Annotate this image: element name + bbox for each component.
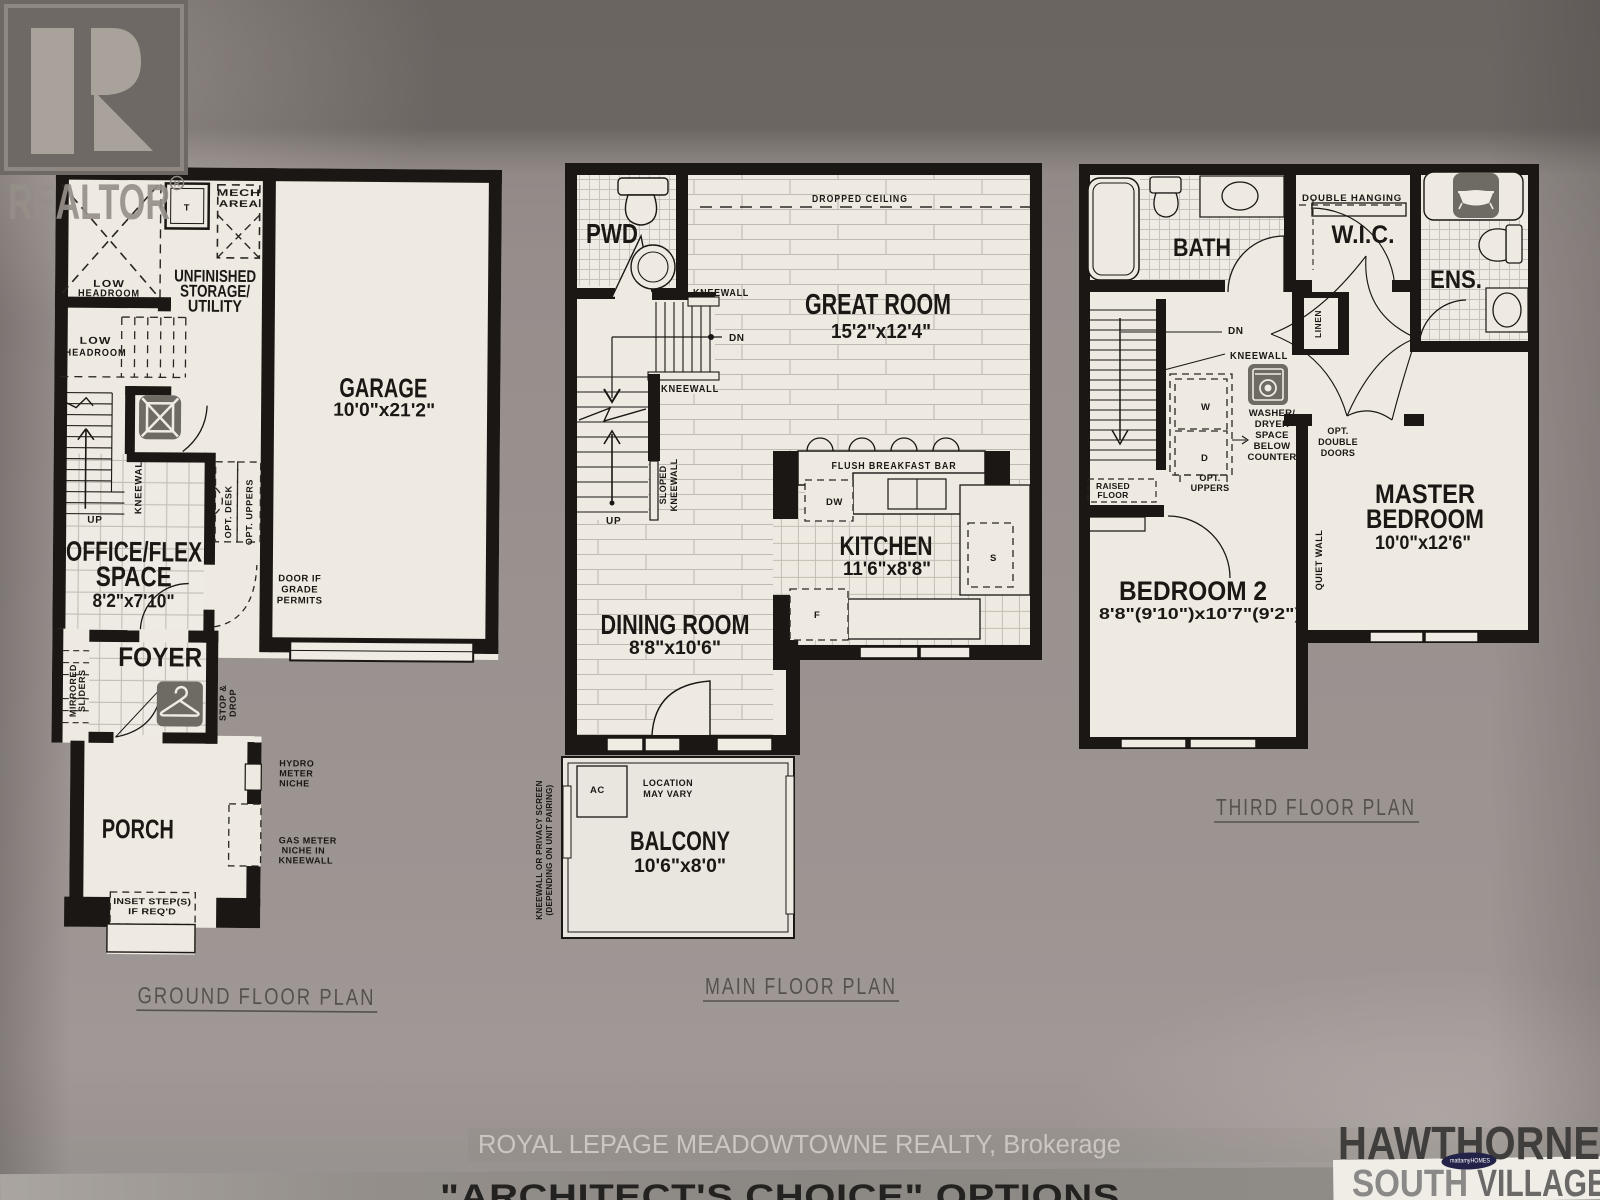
svg-text:T: T bbox=[184, 203, 190, 213]
svg-text:KITCHEN: KITCHEN bbox=[840, 531, 933, 561]
svg-text:S: S bbox=[990, 553, 996, 564]
svg-text:COUNTER: COUNTER bbox=[1247, 452, 1296, 463]
svg-text:DRYER: DRYER bbox=[1255, 419, 1289, 430]
svg-text:INSET STEP(S): INSET STEP(S) bbox=[113, 896, 191, 907]
svg-text:HEADROOM: HEADROOM bbox=[78, 288, 140, 299]
svg-text:PORCH: PORCH bbox=[102, 814, 174, 845]
svg-text:11'6"x8'8": 11'6"x8'8" bbox=[843, 559, 931, 580]
svg-text:10'0"x21'2": 10'0"x21'2" bbox=[333, 400, 435, 422]
svg-text:THIRD FLOOR PLAN: THIRD FLOOR PLAN bbox=[1216, 794, 1416, 820]
svg-text:D: D bbox=[1201, 453, 1208, 464]
svg-text:SPACE: SPACE bbox=[1255, 430, 1289, 441]
svg-text:KNEEWALL: KNEEWALL bbox=[661, 384, 719, 395]
svg-text:KNEEWALL: KNEEWALL bbox=[279, 855, 334, 865]
svg-text:SLOPED: SLOPED bbox=[658, 465, 668, 504]
svg-text:(DEPENDING ON UNIT PAIRING): (DEPENDING ON UNIT PAIRING) bbox=[545, 784, 554, 915]
svg-text:NICHE: NICHE bbox=[279, 778, 310, 788]
svg-text:MECH: MECH bbox=[217, 188, 261, 199]
svg-text:MAY VARY: MAY VARY bbox=[643, 789, 693, 799]
svg-text:IF REQ'D: IF REQ'D bbox=[128, 906, 176, 916]
svg-text:GROUND FLOOR PLAN: GROUND FLOOR PLAN bbox=[137, 982, 375, 1010]
svg-text:DN: DN bbox=[729, 333, 744, 344]
svg-text:FLOOR: FLOOR bbox=[1097, 490, 1128, 500]
svg-text:8'2"x7'10": 8'2"x7'10" bbox=[93, 591, 175, 613]
svg-text:mattamyHOMES: mattamyHOMES bbox=[1450, 1158, 1491, 1165]
svg-text:MAIN FLOOR PLAN: MAIN FLOOR PLAN bbox=[705, 973, 897, 999]
svg-text:W.I.C.: W.I.C. bbox=[1332, 221, 1395, 249]
svg-text:KNEEWALL: KNEEWALL bbox=[669, 458, 679, 511]
svg-text:OPT.: OPT. bbox=[1199, 473, 1220, 483]
svg-text:DROPPED CEILING: DROPPED CEILING bbox=[812, 194, 908, 205]
svg-text:KNEEWALL: KNEEWALL bbox=[1230, 351, 1288, 362]
svg-text:SLIDERS: SLIDERS bbox=[77, 669, 87, 712]
svg-text:DOOR IF: DOOR IF bbox=[278, 573, 321, 584]
svg-text:UP: UP bbox=[87, 515, 103, 526]
svg-text:10'0"x12'6": 10'0"x12'6" bbox=[1375, 533, 1471, 554]
svg-text:UP: UP bbox=[606, 516, 622, 527]
svg-text:METER: METER bbox=[279, 768, 313, 778]
svg-text:SOUTH: SOUTH bbox=[1352, 1163, 1468, 1200]
svg-text:DOORS: DOORS bbox=[1321, 448, 1356, 458]
svg-text:OPT. DESK: OPT. DESK bbox=[223, 485, 233, 538]
svg-text:STOP &: STOP & bbox=[218, 685, 228, 721]
svg-text:ROYAL LEPAGE MEADOWTOWNE REALT: ROYAL LEPAGE MEADOWTOWNE REALTY, Brokera… bbox=[478, 1131, 1121, 1159]
svg-text:8'8"(9'10")x10'7"(9'2"): 8'8"(9'10")x10'7"(9'2") bbox=[1099, 606, 1301, 623]
svg-text:LINEN: LINEN bbox=[1313, 310, 1323, 338]
svg-text:HEADROOM: HEADROOM bbox=[65, 348, 127, 359]
svg-text:AC: AC bbox=[590, 785, 605, 796]
svg-text:KNEEWALL OR PRIVACY SCREEN: KNEEWALL OR PRIVACY SCREEN bbox=[535, 780, 544, 919]
svg-text:UPPERS: UPPERS bbox=[1191, 483, 1230, 493]
svg-text:AREA: AREA bbox=[219, 199, 259, 210]
svg-text:UTILITY: UTILITY bbox=[188, 297, 243, 316]
svg-text:LOCATION: LOCATION bbox=[643, 778, 693, 788]
svg-text:LOW: LOW bbox=[80, 336, 112, 347]
svg-text:10'6"x8'0": 10'6"x8'0" bbox=[634, 856, 726, 877]
svg-text:8'8"x10'6": 8'8"x10'6" bbox=[629, 638, 721, 659]
svg-text:NICHE IN: NICHE IN bbox=[282, 845, 326, 855]
svg-text:PERMITS: PERMITS bbox=[277, 595, 323, 606]
svg-text:BELOW: BELOW bbox=[1254, 441, 1291, 452]
svg-text:REALTOR: REALTOR bbox=[8, 174, 170, 230]
svg-text:WASHER/: WASHER/ bbox=[1249, 408, 1295, 419]
svg-text:BALCONY: BALCONY bbox=[630, 826, 730, 856]
svg-text:DINING ROOM: DINING ROOM bbox=[601, 609, 750, 640]
svg-text:FLUSH BREAKFAST BAR: FLUSH BREAKFAST BAR bbox=[832, 461, 957, 472]
svg-text:GAS METER: GAS METER bbox=[279, 835, 337, 845]
svg-text:BATH: BATH bbox=[1173, 234, 1231, 262]
svg-text:OPT. UPPERS: OPT. UPPERS bbox=[244, 479, 255, 545]
svg-text:DROP: DROP bbox=[228, 689, 238, 717]
svg-text:DOUBLE HANGING: DOUBLE HANGING bbox=[1302, 193, 1402, 204]
svg-text:SPACE: SPACE bbox=[96, 561, 172, 593]
svg-text:FOYER: FOYER bbox=[118, 642, 202, 673]
svg-text:W: W bbox=[1201, 402, 1210, 413]
svg-text:DN: DN bbox=[1228, 326, 1243, 337]
svg-text:DW: DW bbox=[826, 497, 843, 508]
svg-text:15'2"x12'4": 15'2"x12'4" bbox=[831, 321, 931, 343]
svg-text:VILLAGE: VILLAGE bbox=[1477, 1163, 1600, 1200]
svg-text:DOUBLE: DOUBLE bbox=[1318, 437, 1358, 447]
svg-text:KNEEWALL: KNEEWALL bbox=[693, 288, 749, 299]
svg-text:GRADE: GRADE bbox=[281, 584, 318, 595]
svg-text:F: F bbox=[814, 610, 820, 621]
svg-text:PWD: PWD bbox=[586, 218, 638, 249]
svg-text:OPT.: OPT. bbox=[1327, 426, 1348, 436]
svg-text:GREAT ROOM: GREAT ROOM bbox=[805, 289, 951, 321]
svg-text:ENS.: ENS. bbox=[1430, 266, 1482, 294]
svg-text:"ARCHITECT'S CHOICE" OPTIONS: "ARCHITECT'S CHOICE" OPTIONS bbox=[440, 1178, 1120, 1200]
svg-text:BEDROOM: BEDROOM bbox=[1366, 504, 1484, 534]
svg-text:KNEEWALL: KNEEWALL bbox=[133, 454, 144, 514]
svg-text:BEDROOM 2: BEDROOM 2 bbox=[1119, 576, 1267, 606]
svg-text:QUIET WALL: QUIET WALL bbox=[1314, 530, 1324, 591]
svg-text:GARAGE: GARAGE bbox=[339, 373, 427, 404]
svg-text:R: R bbox=[174, 179, 181, 189]
svg-text:HYDRO: HYDRO bbox=[279, 758, 314, 768]
